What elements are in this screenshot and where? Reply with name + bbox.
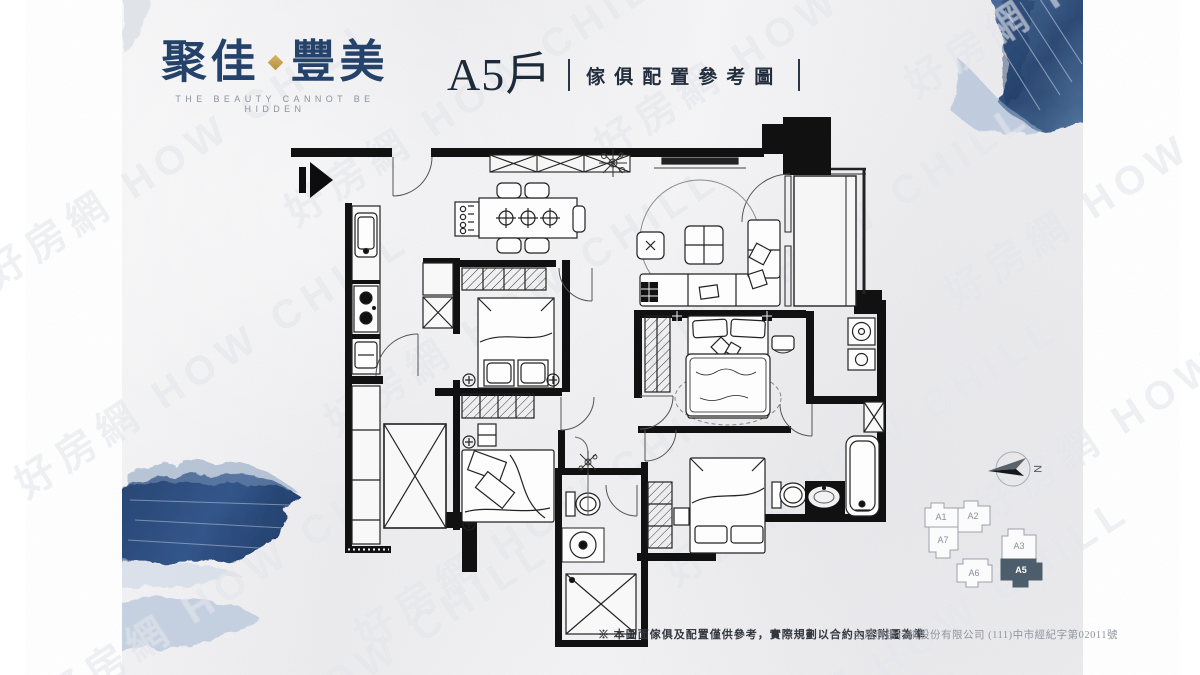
bedroom-1 (462, 268, 559, 388)
paint-stroke-left (118, 460, 302, 652)
bedroom-2 (462, 394, 554, 530)
entrance-arrow-icon (299, 162, 333, 198)
dining-set (455, 183, 585, 253)
title-divider-left (568, 59, 570, 91)
brand-logo: 聚佳 豐美 THE BEAUTY CANNOT BE HIDDEN (152, 40, 398, 114)
keyplan-label-a7: A7 (937, 535, 948, 545)
diamond-icon (267, 55, 283, 71)
brand-name-right: 豐美 (291, 40, 389, 85)
north-arrow-icon: N (980, 438, 1048, 498)
brand-name-left: 聚佳 (161, 40, 259, 85)
paint-stroke-top-right (952, 0, 1095, 135)
keyplan-label-a3: A3 (1013, 541, 1024, 551)
compass-label: N (1031, 465, 1043, 473)
living-room (637, 158, 780, 306)
balcony (785, 169, 866, 306)
plant-icon (599, 149, 627, 177)
title-divider-right (798, 59, 800, 91)
license-text: 全晟廣告行銷股份有限公司 (111)中市經紀字第02011號 (853, 627, 1118, 642)
keyplan-label-a6: A6 (968, 568, 979, 578)
keyplan-label-a5: A5 (1015, 565, 1027, 575)
bedroom-3 (648, 458, 765, 553)
master-bedroom (645, 311, 794, 425)
paint-mark-top-left (122, 0, 150, 50)
unit-key-plan: A1 A2 A7 A6 A3 A5 (916, 492, 1066, 604)
unit-title: A5戶 (447, 52, 552, 98)
keyplan-label-a2: A2 (967, 511, 978, 521)
floor-plan (285, 108, 895, 653)
page-title: A5戶 傢俱配置參考圖 (447, 46, 816, 104)
title-subtitle: 傢俱配置參考圖 (586, 62, 782, 89)
bathroom-right (772, 436, 879, 516)
poster-page: 好房網 HOW CHILL 好房網 HOW CHILL 好房網 HOW CHIL… (0, 0, 1200, 675)
laundry-utility (848, 318, 875, 370)
keyplan-label-a1: A1 (935, 512, 946, 522)
